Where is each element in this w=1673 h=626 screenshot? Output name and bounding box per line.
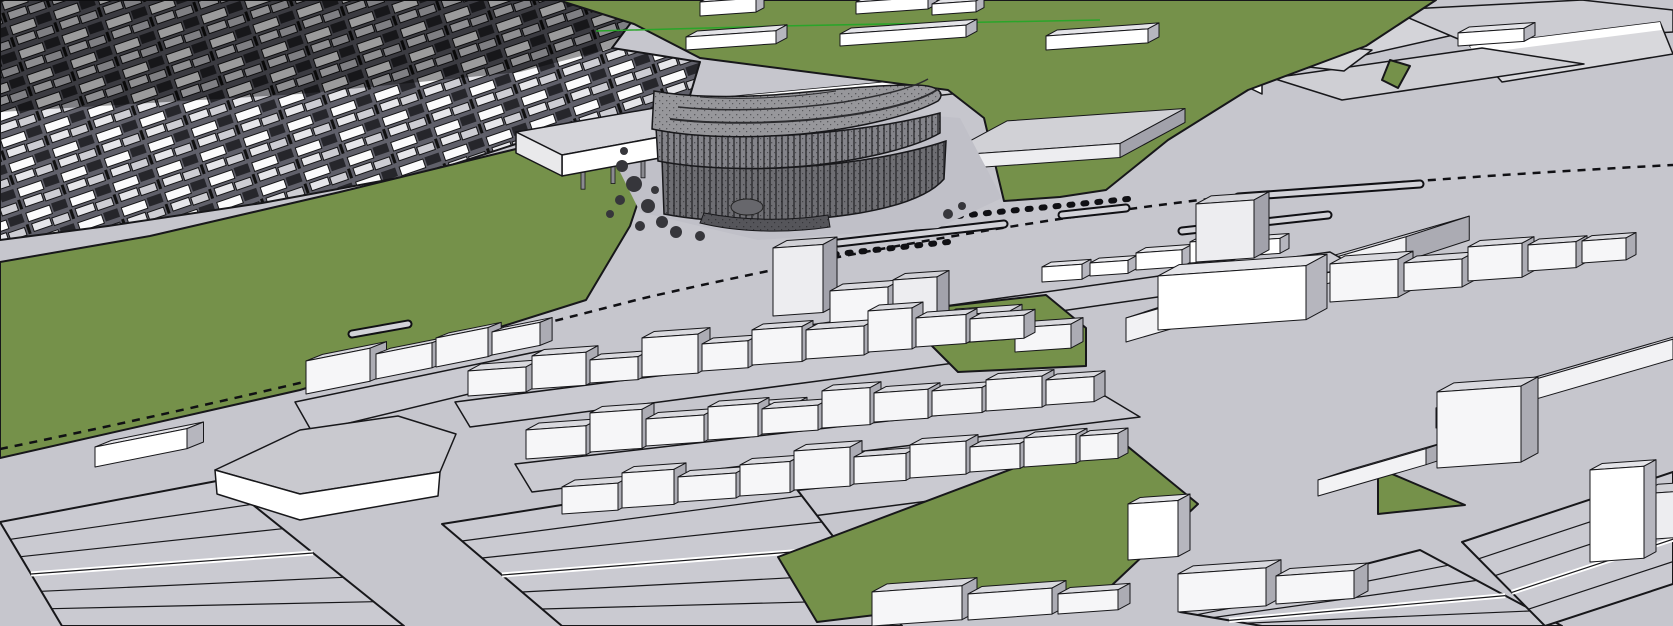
massing-building: [1437, 377, 1538, 468]
massing-building: [794, 441, 862, 490]
massing-building: [646, 408, 716, 446]
massing-building: [1468, 237, 1534, 281]
massing-building: [1330, 251, 1413, 302]
city-model-canvas[interactable]: [0, 0, 1673, 626]
massing-building: [752, 321, 813, 365]
massing-building: [932, 382, 993, 416]
massing-building: [1046, 371, 1105, 405]
massing-building: [910, 435, 978, 478]
massing-building: [916, 309, 977, 347]
massing-building: [872, 578, 977, 626]
tree: [656, 216, 668, 228]
massing-building: [1590, 460, 1656, 562]
massing-building: [1128, 494, 1190, 560]
massing-building: [773, 237, 837, 316]
massing-building: [1158, 254, 1327, 330]
massing-building: [986, 370, 1054, 411]
massing-building: [590, 403, 654, 452]
massing-building: [532, 346, 598, 389]
tree: [620, 147, 628, 155]
massing-building: [740, 455, 802, 496]
massing-building: [968, 581, 1066, 620]
tree: [626, 176, 642, 192]
massing-building: [678, 466, 748, 502]
massing-building: [1404, 252, 1475, 291]
tree: [641, 199, 655, 213]
massing-building: [468, 360, 539, 396]
drum-volume: [731, 199, 763, 215]
tree: [616, 160, 628, 172]
massing-building: [970, 438, 1031, 472]
tree: [651, 186, 659, 194]
massing-building: [526, 419, 599, 459]
massing-building: [868, 302, 923, 352]
massing-building: [1042, 259, 1091, 282]
massing-building: [708, 398, 769, 440]
tree: [943, 209, 953, 219]
massing-building: [562, 476, 631, 514]
massing-building: [642, 328, 710, 377]
tree: [615, 195, 625, 205]
massing-building: [762, 399, 830, 434]
massing-building: [1058, 583, 1130, 614]
massing-building: [854, 447, 917, 484]
massing-building: [702, 335, 759, 371]
tree: [606, 210, 614, 218]
massing-building: [1196, 192, 1269, 262]
massing-building: [822, 382, 881, 428]
massing-building: [970, 309, 1035, 342]
massing-building: [874, 383, 940, 422]
massing-building: [1178, 560, 1281, 612]
tree: [670, 226, 682, 238]
tree: [958, 202, 966, 210]
massing-building: [622, 463, 686, 508]
massing-building: [590, 351, 649, 383]
tree: [695, 231, 705, 241]
massing-building: [1276, 563, 1368, 604]
tree: [635, 221, 645, 231]
massing-building: [1080, 428, 1128, 461]
massing-building: [806, 319, 876, 359]
3d-viewport[interactable]: [0, 0, 1673, 626]
massing-building: [1582, 233, 1636, 263]
massing-building: [1024, 428, 1087, 467]
massing-building: [1528, 236, 1587, 271]
